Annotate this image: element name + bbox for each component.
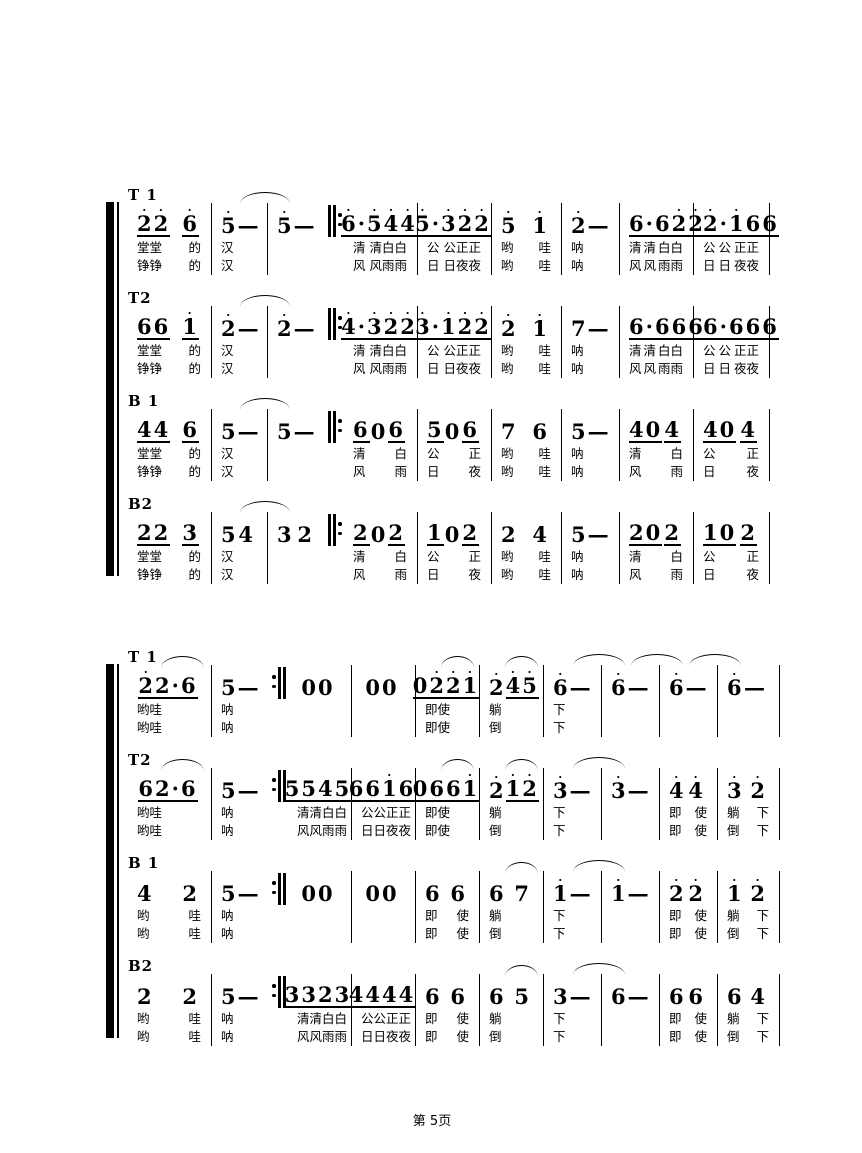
note: — [588,524,611,546]
lyric-line-verse2: 即使 [416,719,479,737]
score-page: T 1226堂堂的铮铮的5—汉汉5—6·544清清白白风风雨雨5·322公公正正… [0,0,862,1153]
repeat-dot [338,419,342,423]
note: 40 [629,419,662,443]
note: 4 [137,883,154,905]
note: 66 [137,316,170,340]
lyric-syllable: 汉 [221,446,234,463]
lyric-line-verse1 [602,1010,659,1028]
lyric-line-verse2 [268,463,326,481]
lyric-line-verse1: 堂堂的 [128,239,211,257]
lyric-syllable: 哟 [501,361,514,378]
lyric-syllable: 哟哇 [137,805,162,822]
measure-row: 223堂堂的铮铮的54汉汉32202清白风雨102公正日夜24哟哇哟哇5—呐呐2… [128,512,862,584]
notes-line: 24 [492,512,561,548]
lyric-line-verse2: 日日夜夜 [352,1028,415,1046]
lyric-syllable: 风 [629,464,642,481]
lyric-syllable: 下 [553,1029,566,1046]
measure: 5—呐呐 [212,768,270,840]
lyric-line-verse1: 呐 [212,804,270,822]
octave-dot-note: 2 [474,316,491,337]
octave-dot-note: 4 [384,213,401,234]
lyric-syllable: 公 [703,240,716,257]
lyric-line-verse2 [602,925,659,943]
lyric-line-verse1: 清清白白 [288,1010,351,1028]
note: 6 [727,677,744,699]
lyric-line-verse2: 日日夜夜 [418,257,491,275]
measure: 6— [602,974,660,1046]
lyric-syllable: 躺 [727,805,740,822]
note: 3·122 [415,316,491,340]
note: 5 [514,986,531,1008]
notes-line: 66 [416,871,479,907]
lyric-line-verse1: 躺下 [718,1010,779,1028]
notes-line: 66 [660,974,717,1010]
lyric-syllable: 下 [553,720,566,737]
lyric-syllable: 堂堂 [137,446,162,463]
lyric-line-verse2 [268,257,326,275]
lyric-line-verse1: 清白 [620,445,693,463]
measure: 6·622清清白白风风雨雨 [620,203,694,275]
lyric-syllable: 日日夜夜 [361,823,411,840]
measure: 2—呐呐 [562,203,620,275]
lyric-syllable: 夜 [746,464,759,481]
octave-dot-note: 2 [688,883,705,904]
lyric-syllable: 使 [694,926,707,943]
notes-line: 66 [416,974,479,1010]
lyric-syllable: 下 [553,926,566,943]
lyric-syllable: 倒 [489,720,502,737]
notes-line: 6·666 [620,306,693,342]
lyric-syllable: 日 [427,464,440,481]
lyric-syllable: 哟哇 [137,823,162,840]
lyric-syllable: 日 [427,258,440,275]
notes-line: 3323 [288,974,351,1010]
note: 6 [688,986,705,1008]
lyric-line-verse1 [660,701,717,719]
lyric-syllable: 的 [188,464,201,481]
note: 22·6 [138,675,197,699]
barline [333,411,336,443]
lyric-line-verse1: 公公正正 [694,239,769,257]
lyric-syllable: 汉 [221,343,234,360]
note: 4 [750,986,767,1008]
note: 2 [182,986,199,1008]
lyric-line-verse2: 风雨 [620,463,693,481]
measure: 6·666清清白白风风雨雨 [620,306,694,378]
octave-dot-note: 3 [727,780,744,801]
note: 7 [501,421,518,443]
lyric-line-verse1: 即使 [416,1010,479,1028]
lyric-line-verse2: 风风雨雨 [288,1028,351,1046]
note: 6 [727,986,744,1008]
measure-row: 42哟哇哟哇5—呐呐000066即使即使67躺倒1—下下1—22即使即使12躺下… [128,871,862,943]
note: 0 [445,524,462,546]
lyric-syllable: 下 [553,823,566,840]
lyric-syllable: 躺 [727,908,740,925]
lyric-line-verse2: 倒 [480,719,543,737]
note: 5 [221,986,238,1008]
lyric-syllable: 清 [353,343,366,360]
measure: 5·322公公正正日日夜夜 [418,203,492,275]
lyric-line-verse1: 下 [544,1010,601,1028]
lyric-line-verse1: 即使 [660,907,717,925]
notes-line: 4444 [352,974,415,1010]
lyric-line-verse2: 下 [544,1028,601,1046]
lyric-syllable: 躺 [727,1011,740,1028]
lyric-line-verse1: 清白 [344,548,417,566]
note: 3 [182,522,199,546]
lyric-syllable: 哇 [188,908,201,925]
barline [333,514,336,546]
octave-dot-note: 2 [474,213,491,234]
lyric-syllable: 呐 [571,567,584,584]
note: 2 [388,522,405,546]
lyric-syllable: 公 [427,343,440,360]
note: 1 [427,522,444,546]
measure: 2— [268,306,326,378]
lyric-syllable: 呐 [571,361,584,378]
lyric-syllable: 堂堂 [137,343,162,360]
barline [278,667,281,699]
lyric-syllable: 呐 [571,464,584,481]
lyric-line-verse1: 即使 [660,1010,717,1028]
lyric-syllable: 呐 [221,908,234,925]
note: — [570,986,593,1008]
lyric-syllable: 呐 [221,823,234,840]
lyric-syllable: 夜夜 [734,361,759,378]
lyric-line-verse1: 公公正正 [352,804,415,822]
note: 6·6 [703,316,746,340]
lyric-syllable: 雨雨 [658,361,683,378]
measure: 24哟哇哟哇 [492,512,562,584]
lyric-line-verse1: 公正 [418,445,491,463]
notes-line: 76 [492,409,561,445]
lyric-line-verse2: 铮铮的 [128,257,211,275]
barline [283,873,286,905]
lyric-syllable: 风 [629,361,642,378]
octave-dot-note: 3 [611,780,628,801]
octave-dot-note: 2 [672,213,689,234]
note: 5545 [285,778,352,802]
score-systems: T 1226堂堂的铮铮的5—汉汉5—6·544清清白白风风雨雨5·322公公正正… [106,186,862,1046]
lyric-syllable: 白白 [658,240,683,257]
notes-line: 6·622 [620,203,693,239]
lyric-line-verse1 [718,701,779,719]
note: 2·1 [703,213,746,237]
lyric-line-verse2: 倒下 [718,925,779,943]
note: 00 [365,883,398,905]
lyric-syllable: 日夜夜 [443,361,481,378]
lyric-line-verse1: 哟哇 [492,548,561,566]
lyric-syllable: 汉 [221,549,234,566]
notes-line: 223 [128,512,211,548]
note: — [570,780,593,802]
lyric-line-verse2: 铮铮的 [128,566,211,584]
lyric-line-verse1 [268,342,326,360]
lyric-syllable: 哇 [538,361,551,378]
measure-row: 22·6哟哇哟哇5—呐呐00000221即使即使245躺倒6—下下6—6—6— [128,665,862,737]
lyric-line-verse2: 风风雨雨 [620,360,693,378]
part-label: B2 [128,495,862,512]
measure: 64躺下倒下 [718,974,780,1046]
octave-dot-note: 2 [501,318,518,339]
notes-line: 661 [128,306,211,342]
part-label: B 1 [128,392,862,409]
lyric-syllable: 哇 [188,926,201,943]
repeat-dots [338,411,342,432]
octave-dot-note: 5 [221,215,238,236]
note: 0661 [413,778,480,802]
lyric-syllable: 哟哇 [137,720,162,737]
lyric-syllable: 即使 [425,805,450,822]
lyric-line-verse2: 呐 [562,257,619,275]
octave-dot-note: 2 [750,883,767,904]
lyric-syllable: 清 [629,343,642,360]
lyric-syllable: 公 [718,343,731,360]
lyric-syllable: 哇 [538,464,551,481]
lyric-line-verse1: 汉 [212,548,267,566]
lyric-syllable: 的 [188,567,201,584]
lyric-line-verse2: 汉 [212,463,267,481]
notes-line: 2— [268,306,326,342]
measure: 5—汉汉 [212,203,268,275]
octave-dot-note: 2 [750,780,767,801]
lyric-line-verse1: 下 [544,804,601,822]
lyric-syllable: 使 [694,823,707,840]
measure: 7—呐呐 [562,306,620,378]
lyric-syllable: 哟 [501,240,514,257]
measure: 3323清清白白风风雨雨 [288,974,352,1046]
measure: 2·166公公正正日日夜夜 [694,203,770,275]
lyric-syllable: 正 [746,446,759,463]
measure: 1— [602,871,660,943]
note: 12 [506,778,539,802]
note: 22 [137,522,170,546]
measure: 6—下下 [544,665,602,737]
notes-line: 506 [418,409,491,445]
octave-dot-note: 3 [441,213,458,234]
measure: 404公正日夜 [694,409,770,481]
lyric-syllable: 哟 [501,343,514,360]
part-label: B2 [128,957,862,974]
lyric-syllable: 日 [718,258,731,275]
lyric-line-verse2: 汉 [212,566,267,584]
bracket-thick-line [106,664,114,1038]
note: 6·544 [341,213,417,237]
lyric-syllable: 公公正正 [361,805,411,822]
repeat-dot [272,675,276,679]
lyric-syllable: 躺 [489,805,502,822]
lyric-syllable: 哟 [137,926,150,943]
measure: 5— [268,409,326,481]
lyric-syllable: 使 [694,908,707,925]
measure: 3·122公公正正日日夜夜 [418,306,492,378]
system-2: T 122·6哟哇哟哇5—呐呐00000221即使即使245躺倒6—下下6—6—… [106,648,862,1046]
lyric-line-verse2: 呐 [562,463,619,481]
measure: 2—汉汉 [212,306,268,378]
notes-line: 44 [660,768,717,804]
octave-dot-note: 2 [154,213,171,234]
lyric-line-verse1: 躺 [480,907,543,925]
note: 45 [506,675,539,699]
lyric-line-verse1: 汉 [212,445,267,463]
notes-line: 22 [128,974,211,1010]
lyric-line-verse1 [602,907,659,925]
notes-line: 3— [544,974,601,1010]
measure-row: 22哟哇哟哇5—呐呐3323清清白白风风雨雨4444公公正正日日夜夜66即使即使… [128,974,862,1046]
lyric-line-verse2: 哟哇 [492,566,561,584]
lyric-syllable: 哇 [538,549,551,566]
system-bracket [106,664,120,1038]
lyric-line-verse2: 下 [544,719,601,737]
lyric-syllable: 下 [756,908,769,925]
lyric-line-verse2: 倒 [480,925,543,943]
repeat-dots [272,873,276,894]
lyric-line-verse2 [602,719,659,737]
lyric-line-verse1: 即使 [416,907,479,925]
notes-line: 6— [544,665,601,701]
measure: 22·6哟哇哟哇 [128,665,212,737]
lyric-syllable: 下 [756,1029,769,1046]
repeat-end-barline [270,665,288,737]
lyric-line-verse1: 哟哇 [128,804,211,822]
measure: 202清白风雨 [620,512,694,584]
lyric-syllable: 公 [703,549,716,566]
measure: 5545清清白白风风雨雨 [288,768,352,840]
lyric-line-verse1: 躺 [480,804,543,822]
lyric-syllable: 雨 [670,464,683,481]
lyric-syllable: 哟 [501,258,514,275]
lyric-syllable: 呐 [221,702,234,719]
lyric-syllable: 日 [703,361,716,378]
note: — [294,421,317,443]
lyric-syllable: 公 [703,446,716,463]
note: 66 [746,316,779,340]
lyric-syllable: 正 [468,549,481,566]
measure: 3—下下 [544,974,602,1046]
lyric-syllable: 风雨雨 [369,361,407,378]
lyric-syllable: 清 [353,549,366,566]
lyric-syllable: 日日夜夜 [361,1029,411,1046]
lyric-line-verse2 [268,566,326,584]
system-bracket [106,202,120,576]
note: 2 [750,780,767,802]
measure: 446堂堂的铮铮的 [128,409,212,481]
lyric-syllable: 白 [670,549,683,566]
notes-line: 5— [212,974,270,1010]
note: 2 [489,780,506,802]
lyric-line-verse2: 哟哇 [128,1028,211,1046]
lyric-syllable: 使 [456,1011,469,1028]
notes-line: 5545 [288,768,351,804]
octave-dot-note: 2 [489,677,506,698]
lyric-syllable: 清 [629,240,642,257]
lyric-syllable: 正正 [734,343,759,360]
lyric-syllable: 哇 [538,258,551,275]
notes-line: 5— [212,768,270,804]
lyric-syllable: 即 [669,1029,682,1046]
lyric-syllable: 哟 [137,908,150,925]
note: 2 [571,215,588,237]
lyric-syllable: 呐 [571,549,584,566]
lyric-syllable: 哇 [538,567,551,584]
note: 20 [629,522,662,546]
octave-dot-note: 4 [688,780,705,801]
lyric-syllable: 清 [629,549,642,566]
lyric-syllable: 即 [669,823,682,840]
barline [328,205,331,237]
lyric-syllable: 风 [643,361,656,378]
repeat-dot [272,685,276,689]
lyric-syllable: 使 [694,1011,707,1028]
notes-line: 6616 [352,768,415,804]
note: 6 [611,986,628,1008]
notes-line: 62·6 [128,768,211,804]
lyric-syllable: 白白 [658,343,683,360]
note: 5 [221,524,238,546]
lyric-line-verse1: 呐 [562,548,619,566]
part-label: B 1 [128,854,862,871]
lyric-line-verse2: 呐 [212,925,270,943]
lyric-line-verse1: 即使 [660,804,717,822]
bracket-thin-line [117,202,119,576]
note: 5 [427,419,444,443]
note: 4 [669,780,686,802]
note: 2 [750,883,767,905]
lyric-syllable: 汉 [221,240,234,257]
note: 2 [688,883,705,905]
lyric-syllable: 即使 [425,702,450,719]
barline [278,873,281,905]
note: 4 [664,419,681,443]
lyric-line-verse2: 风雨 [344,566,417,584]
note: — [238,780,261,802]
notes-line: 4·322 [344,306,417,342]
barline [283,667,286,699]
notes-line: 1— [544,871,601,907]
lyric-line-verse2: 即使 [660,925,717,943]
measure: 212躺倒 [480,768,544,840]
lyric-syllable: 风 [353,567,366,584]
lyric-line-verse1 [602,701,659,719]
note: 3 [553,986,570,1008]
note: 6 [532,421,549,443]
measure: 12躺下倒下 [718,871,780,943]
lyric-line-verse1 [352,701,415,719]
note: 1 [532,215,549,237]
octave-dot-note: 2 [138,675,155,696]
part-b1: B 1446堂堂的铮铮的5—汉汉5—606清白风雨506公正日夜76哟哇哟哇5—… [128,392,862,481]
part-t2: T262·6哟哇哟哇5—呐呐5545清清白白风风雨雨6616公公正正日日夜夜06… [128,751,862,840]
lyric-line-verse1: 清清白白 [344,342,417,360]
notes-line: 102 [694,512,769,548]
lyric-line-verse2: 呐 [212,719,270,737]
measure: 606清白风雨 [344,409,418,481]
lyric-line-verse2: 倒下 [718,1028,779,1046]
lyric-syllable: 铮铮 [137,361,162,378]
note: 2 [462,522,479,546]
note: 5 [571,421,588,443]
note: 2 [501,524,518,546]
repeat-dot [338,532,342,536]
lyric-syllable: 呐 [221,1011,234,1028]
notes-line: 6— [718,665,779,701]
lyric-syllable: 躺 [489,1011,502,1028]
octave-dot-note: 6 [182,213,199,234]
octave-dot-note: 1 [441,316,458,337]
note: 6 [182,419,199,443]
notes-line: 6·544 [344,203,417,239]
